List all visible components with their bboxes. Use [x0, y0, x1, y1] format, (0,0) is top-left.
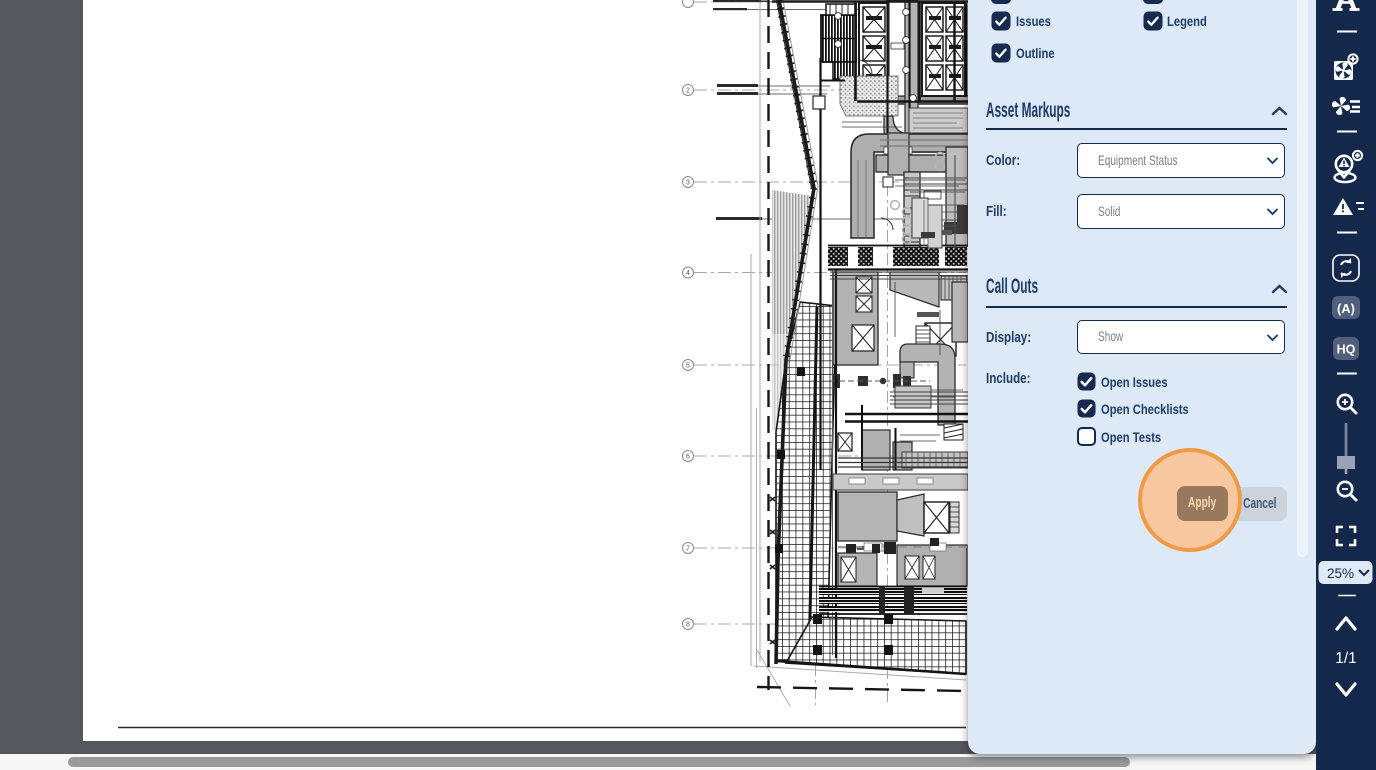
svg-text:3: 3: [686, 180, 690, 187]
svg-text:HQ: HQ: [1337, 343, 1356, 357]
svg-text:25%: 25%: [1327, 566, 1354, 581]
svg-text:2: 2: [686, 88, 690, 95]
svg-text:6: 6: [686, 454, 690, 461]
svg-text:1/1: 1/1: [1335, 650, 1357, 667]
svg-text:5: 5: [686, 363, 690, 370]
svg-text:4: 4: [686, 270, 690, 277]
svg-text:7: 7: [686, 546, 690, 553]
svg-text:8: 8: [686, 622, 690, 629]
svg-text:(A): (A): [1337, 301, 1355, 316]
